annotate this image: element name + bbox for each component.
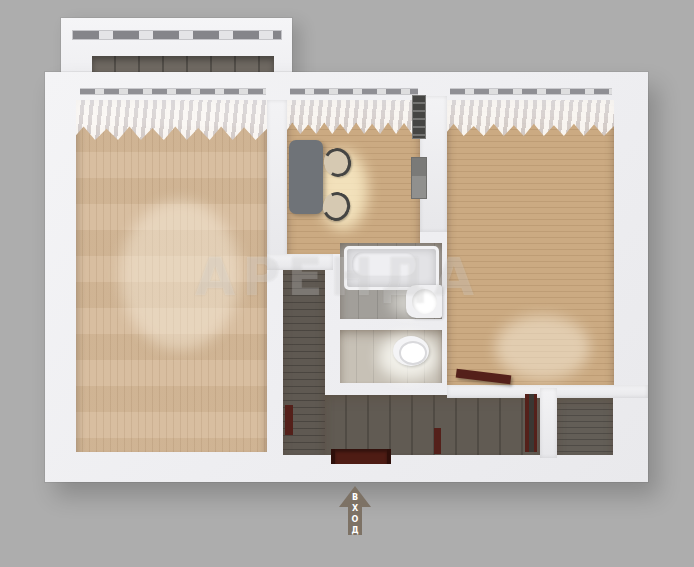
entrance-door [331, 449, 391, 464]
entrance-label: ВХОД [344, 494, 366, 536]
window-kitchen [290, 88, 418, 95]
closet-door-frame [525, 394, 537, 452]
toilet-door [434, 428, 441, 454]
kitchen-table [289, 140, 323, 214]
floorplan-canvas: АРЕНДА ВХОД [0, 0, 694, 567]
kitchen-stove [412, 158, 426, 198]
window-living-room [80, 88, 266, 95]
window-bedroom [450, 88, 612, 95]
kitchen-tall-cabinet [413, 96, 425, 138]
wall-living-kitchen [267, 100, 287, 268]
toilet-seat [399, 341, 427, 365]
bathtub-basin [352, 252, 416, 276]
living-room-door [285, 405, 293, 435]
living-room-floor [76, 100, 267, 452]
bedroom-floor [447, 100, 614, 385]
closet-floor [557, 398, 613, 455]
sink-bowl [412, 289, 437, 314]
wall-hallway-closet [540, 388, 557, 458]
balcony-window-glazing [72, 30, 282, 40]
hallway-floor-bottom [325, 395, 540, 455]
wall-kitchen-hallway [267, 254, 333, 270]
